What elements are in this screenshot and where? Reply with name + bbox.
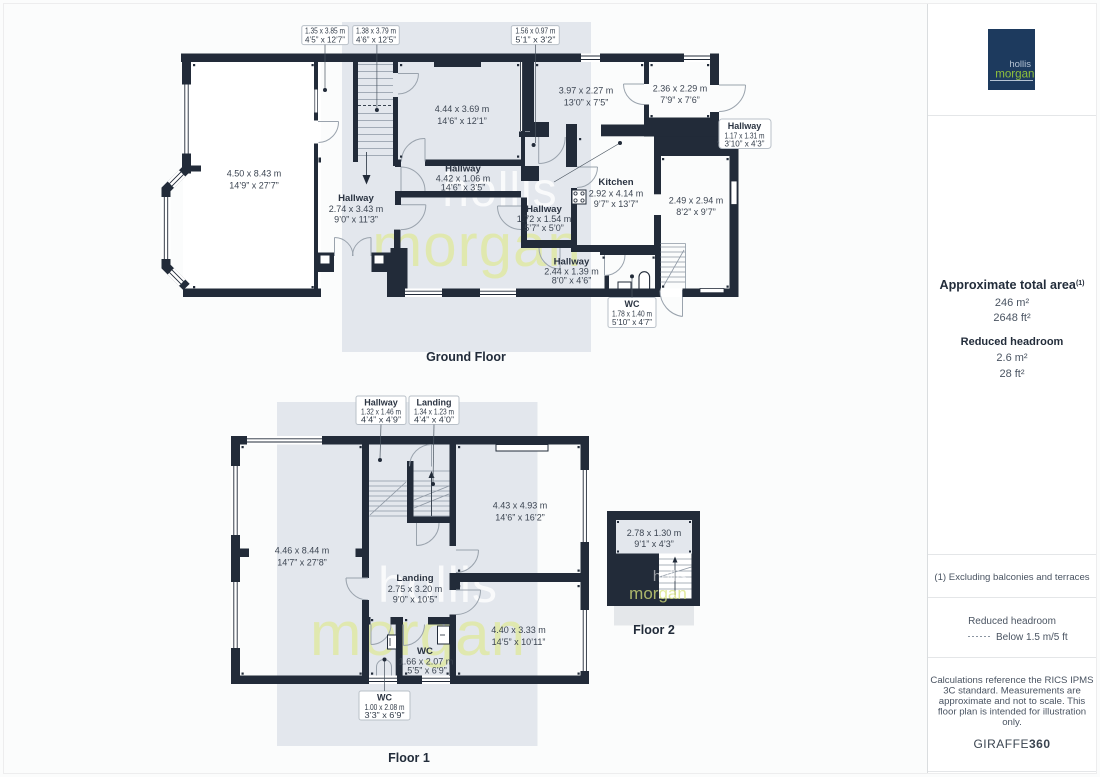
svg-text:2.75 x 3.20 m: 2.75 x 3.20 m: [388, 584, 443, 594]
svg-text:14’6” x 16’2”: 14’6” x 16’2”: [495, 513, 545, 523]
svg-text:Kitchen: Kitchen: [598, 177, 633, 188]
svg-text:9’1” x 4’3”: 9’1” x 4’3”: [634, 539, 674, 549]
svg-text:Floor 2: Floor 2: [633, 623, 675, 637]
svg-text:only.: only.: [1002, 717, 1022, 728]
svg-text:WC: WC: [625, 299, 640, 309]
svg-text:9’0” x 11’3”: 9’0” x 11’3”: [334, 215, 378, 225]
svg-text:28 ft²: 28 ft²: [999, 368, 1024, 380]
svg-text:246 m²: 246 m²: [995, 297, 1030, 309]
svg-text:2.78 x 1.30 m: 2.78 x 1.30 m: [627, 528, 682, 538]
svg-text:Calculations reference the RIC: Calculations reference the RICS IPMS: [930, 675, 1093, 686]
svg-text:4.43 x 4.93 m: 4.43 x 4.93 m: [493, 501, 548, 511]
svg-text:4.44 x 3.69 m: 4.44 x 3.69 m: [435, 104, 490, 114]
svg-text:Hallway: Hallway: [338, 193, 374, 204]
svg-text:WC: WC: [377, 693, 392, 703]
svg-text:Ground Floor: Ground Floor: [426, 350, 506, 364]
svg-text:morgan: morgan: [995, 68, 1034, 81]
svg-text:8’2” x 9’7”: 8’2” x 9’7”: [676, 207, 716, 217]
svg-text:WC: WC: [417, 646, 433, 657]
svg-text:Reduced headroom: Reduced headroom: [968, 616, 1056, 627]
svg-text:9’0” x 10’5”: 9’0” x 10’5”: [393, 595, 438, 605]
svg-text:5’1” x 3’2”: 5’1” x 3’2”: [515, 34, 555, 44]
svg-text:Floor 1: Floor 1: [388, 751, 430, 765]
svg-text:14’7” x 27’8”: 14’7” x 27’8”: [277, 558, 327, 568]
svg-text:4’4” x 4’9”: 4’4” x 4’9”: [361, 415, 401, 425]
svg-text:2.6 m²: 2.6 m²: [996, 352, 1028, 364]
svg-text:4.40 x 3.33 m: 4.40 x 3.33 m: [491, 625, 546, 635]
svg-text:14’9” x 27’7”: 14’9” x 27’7”: [229, 181, 279, 191]
svg-text:3’10” x 4’3”: 3’10” x 4’3”: [725, 139, 765, 149]
svg-text:13’0” x 7’5”: 13’0” x 7’5”: [564, 98, 609, 108]
svg-text:8’0” x 4’6”: 8’0” x 4’6”: [552, 276, 592, 286]
svg-text:Hallway: Hallway: [728, 121, 762, 131]
svg-text:4’5” x 12’7”: 4’5” x 12’7”: [305, 34, 345, 44]
svg-text:5’10” x 4’7”: 5’10” x 4’7”: [612, 317, 652, 327]
svg-text:14’6” x 3’5”: 14’6” x 3’5”: [441, 183, 486, 193]
svg-text:hollis: hollis: [653, 568, 687, 585]
svg-text:2.36 x 2.29 m: 2.36 x 2.29 m: [653, 84, 708, 94]
svg-text:2.92 x 4.14 m: 2.92 x 4.14 m: [589, 189, 644, 199]
svg-text:GIRAFFE360: GIRAFFE360: [973, 737, 1050, 751]
svg-text:9’7” x 13’7”: 9’7” x 13’7”: [594, 199, 639, 209]
svg-text:4.46 x 8.44 m: 4.46 x 8.44 m: [275, 546, 330, 556]
svg-text:(1) Excluding balconies and te: (1) Excluding balconies and terraces: [934, 572, 1089, 583]
svg-text:2.74 x 3.43 m: 2.74 x 3.43 m: [329, 204, 384, 214]
svg-text:4.50 x 8.43 m: 4.50 x 8.43 m: [227, 169, 282, 179]
svg-text:2648 ft²: 2648 ft²: [993, 312, 1031, 324]
svg-text:approximate and not to scale.: approximate and not to scale. This: [939, 696, 1086, 707]
svg-text:morgan: morgan: [629, 584, 687, 603]
svg-text:7’9” x 7’6”: 7’9” x 7’6”: [660, 95, 700, 105]
svg-text:Below 1.5 m/5 ft: Below 1.5 m/5 ft: [996, 632, 1068, 643]
svg-text:4’6” x 12’5”: 4’6” x 12’5”: [356, 34, 396, 44]
svg-text:2.49 x 2.94 m: 2.49 x 2.94 m: [669, 196, 724, 206]
svg-text:3.97 x 2.27 m: 3.97 x 2.27 m: [559, 86, 614, 96]
svg-text:5’7” x 5’0”: 5’7” x 5’0”: [524, 223, 564, 233]
svg-text:14’6” x 12’1”: 14’6” x 12’1”: [437, 116, 487, 126]
svg-text:3C standard. Measurements are: 3C standard. Measurements are: [943, 686, 1081, 697]
svg-text:4’4” x 4’0”: 4’4” x 4’0”: [414, 415, 454, 425]
svg-text:3’3” x 6’9”: 3’3” x 6’9”: [365, 710, 405, 720]
svg-text:Reduced headroom: Reduced headroom: [961, 336, 1064, 348]
svg-text:14’5” x 10’11”: 14’5” x 10’11”: [492, 637, 546, 647]
svg-text:Approximate total area(1): Approximate total area(1): [939, 278, 1084, 292]
svg-text:Landing: Landing: [396, 573, 433, 584]
svg-text:5’5” x 6’9”: 5’5” x 6’9”: [407, 666, 447, 676]
svg-text:floor plan is intended for ill: floor plan is intended for illustration: [938, 707, 1086, 718]
